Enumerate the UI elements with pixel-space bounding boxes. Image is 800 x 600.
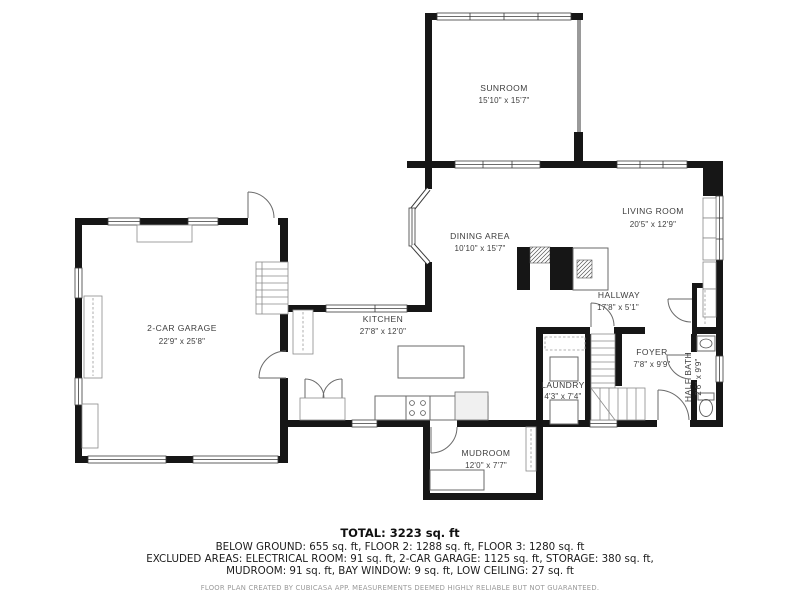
kitchen-counter (375, 392, 488, 420)
room-dims: 10'10" x 15'7" (454, 244, 505, 253)
garage-stairs (256, 262, 288, 314)
room-name: DINING AREA (450, 231, 510, 241)
room-dims: 22'9" x 25'8" (159, 337, 205, 346)
room-name: 2-CAR GARAGE (147, 323, 217, 333)
total-area-text: TOTAL: 3223 sq. ft (340, 526, 460, 540)
pantry-area (293, 310, 345, 420)
summary-line-2: EXCLUDED AREAS: ELECTRICAL ROOM: 91 sq. … (146, 553, 654, 565)
room-label-laundry: LAUNDRY 4'3" x 7'4" (541, 380, 585, 401)
room-dims: 20'5" x 12'9" (630, 220, 676, 229)
room-label-living-room: LIVING ROOM 20'5" x 12'9" (622, 206, 684, 229)
room-name: FOYER (636, 347, 668, 357)
floor-plan: SUNROOM 15'10" x 15'7" LIVING ROOM 20'5"… (0, 0, 800, 600)
dryer (550, 400, 578, 424)
fireplace (517, 247, 608, 290)
sink-icon (697, 336, 715, 351)
room-label-dining-area: DINING AREA 10'10" x 15'7" (450, 231, 510, 253)
room-dims: 15'10" x 15'7" (478, 96, 529, 105)
floor-plan-page: SUNROOM 15'10" x 15'7" LIVING ROOM 20'5"… (0, 0, 800, 600)
laundry-shelf (545, 337, 585, 350)
garage-exterior-door (248, 192, 274, 218)
storage-shelf (82, 404, 98, 448)
bench (430, 470, 484, 490)
walls (75, 13, 723, 500)
coat-closet-door (668, 299, 692, 322)
room-name: LIVING ROOM (622, 206, 684, 216)
summary-line-1: BELOW GROUND: 655 sq. ft, FLOOR 2: 1288 … (216, 541, 585, 553)
kitchen-island (398, 346, 464, 378)
room-dims: 2'6" x 9'9" (694, 358, 703, 395)
room-dims: 7'8" x 9'9" (633, 360, 670, 369)
room-dims: 17'8" x 5'1" (597, 303, 639, 312)
mudroom-door (431, 427, 457, 453)
room-label-sunroom: SUNROOM 15'10" x 15'7" (478, 83, 529, 105)
pantry-double-doors (305, 379, 342, 398)
stove (406, 396, 430, 420)
mudroom-fixtures (430, 427, 536, 490)
pantry-shelf (300, 398, 345, 420)
room-name: SUNROOM (480, 83, 528, 93)
room-label-hallway: HALLWAY 17'8" x 5'1" (597, 290, 640, 312)
room-name: MUDROOM (462, 448, 511, 458)
refrigerator (455, 392, 488, 420)
room-label-foyer: FOYER 7'8" x 9'9" (633, 347, 670, 369)
room-label-garage: 2-CAR GARAGE 22'9" x 25'8" (147, 323, 217, 346)
room-label-kitchen: KITCHEN 27'8" x 12'0" (360, 314, 406, 336)
summary-line-3: MUDROOM: 91 sq. ft, BAY WINDOW: 9 sq. ft… (226, 565, 574, 577)
room-label-mudroom: MUDROOM 12'0" x 7'7" (462, 448, 511, 470)
room-name: HALF BATH (683, 352, 693, 402)
room-dims: 27'8" x 12'0" (360, 327, 406, 336)
washer (550, 357, 578, 381)
room-dims: 4'3" x 7'4" (544, 392, 581, 401)
garage-header (137, 225, 192, 242)
room-name: KITCHEN (363, 314, 403, 324)
room-name: HALLWAY (598, 290, 640, 300)
area-summary: TOTAL: 3223 sq. ft BELOW GROUND: 655 sq.… (146, 526, 654, 592)
disclaimer-text: FLOOR PLAN CREATED BY CUBICASA APP. MEAS… (201, 584, 600, 592)
room-dims: 12'0" x 7'7" (465, 461, 507, 470)
room-name: LAUNDRY (541, 380, 585, 390)
